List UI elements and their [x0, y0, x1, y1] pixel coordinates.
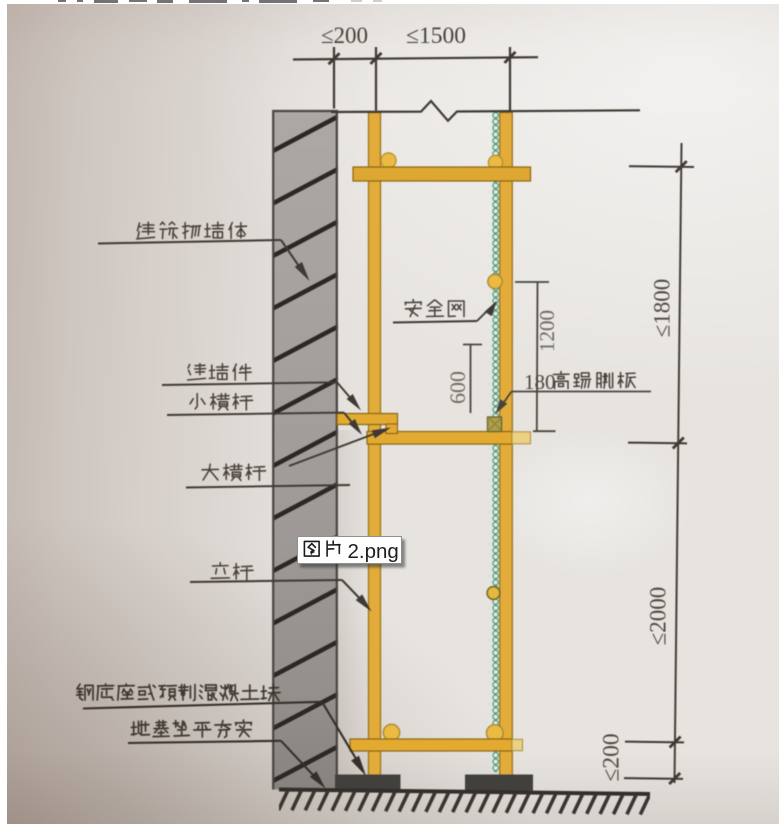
svg-text:2.png: 2.png: [348, 540, 399, 563]
